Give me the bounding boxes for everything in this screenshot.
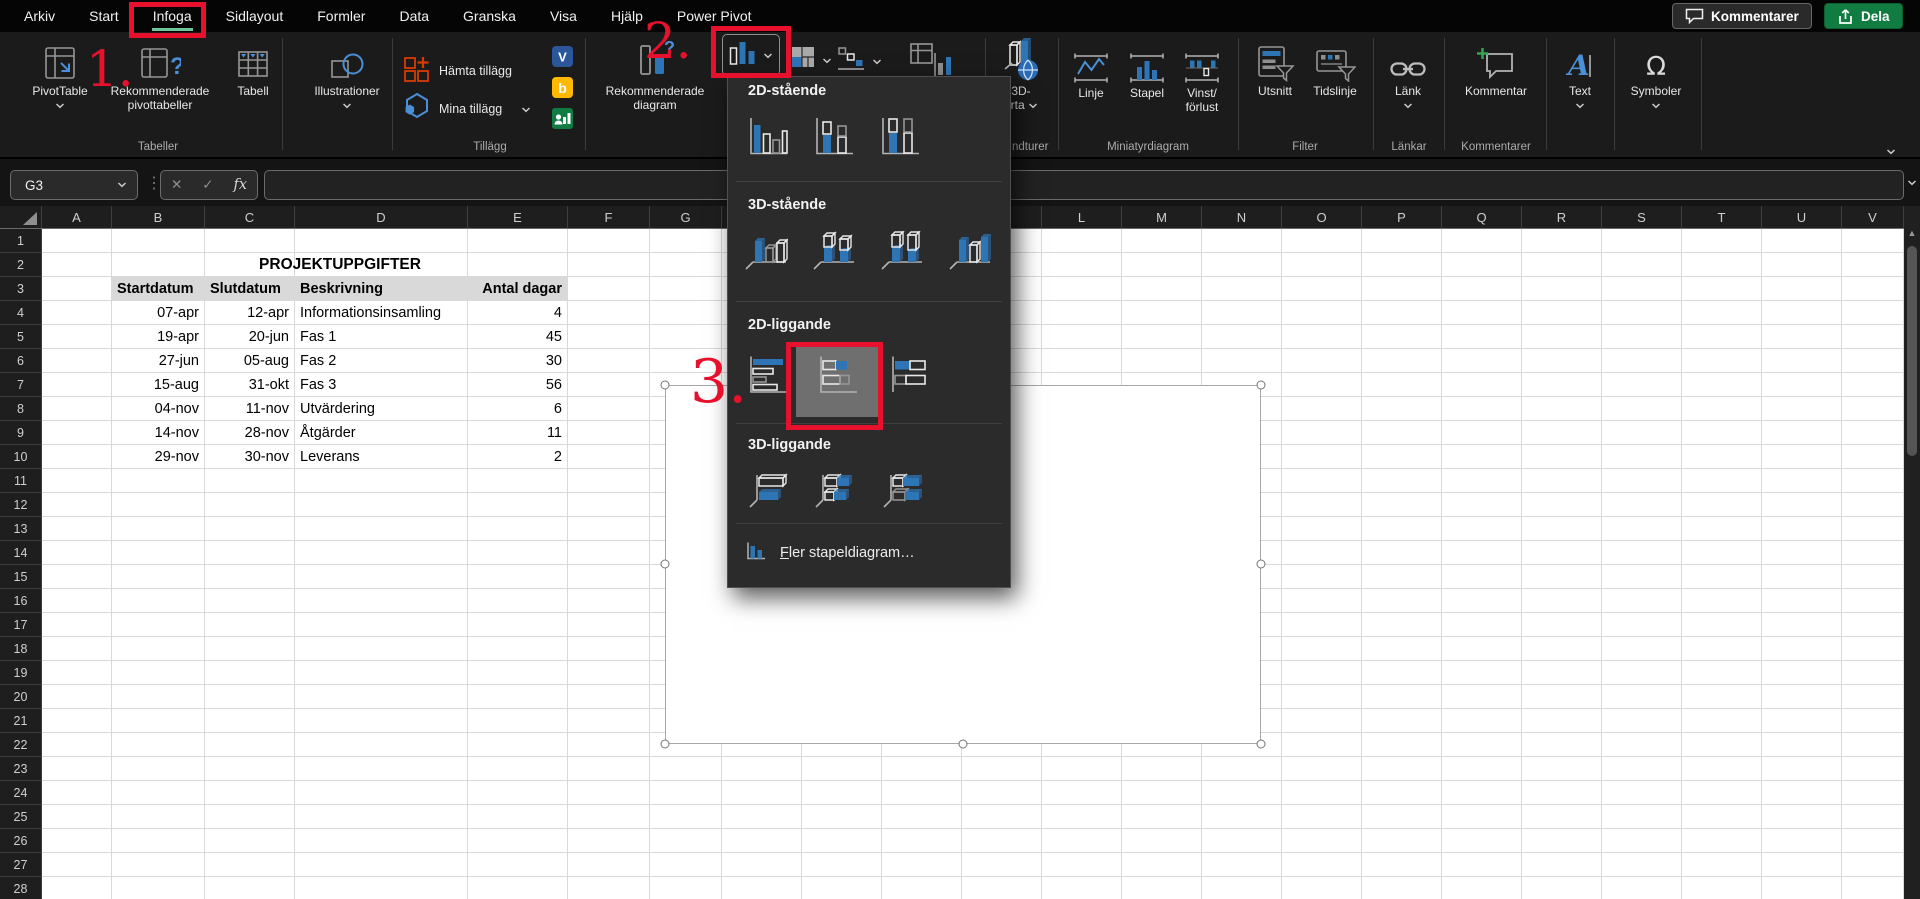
column-header-B[interactable]: B (112, 206, 205, 228)
table-cell[interactable]: 12-apr (205, 301, 295, 325)
svg-text:V: V (558, 50, 567, 65)
chevron-down-icon (55, 103, 65, 109)
table-cell[interactable]: Utvärdering (295, 397, 468, 421)
menu-section-title: 2D-stående (748, 83, 826, 99)
get-addins-icon (402, 54, 432, 87)
sparkline-line-button[interactable]: Linje (1064, 40, 1118, 101)
row-headers: 1234567891011121314151617181920212223242… (0, 229, 42, 899)
share-label: Dela (1861, 9, 1890, 24)
row-header-26[interactable]: 26 (0, 829, 42, 853)
row-header-2[interactable]: 2 (0, 253, 42, 277)
table-cell[interactable]: 31-okt (205, 373, 295, 397)
gridline (42, 804, 1904, 805)
row-header-5[interactable]: 5 (0, 325, 42, 349)
column-header-Q[interactable]: Q (1442, 206, 1522, 228)
row-header-27[interactable]: 27 (0, 853, 42, 877)
table-icon (235, 38, 271, 82)
gridline (42, 828, 1904, 829)
row-header-11[interactable]: 11 (0, 469, 42, 493)
svg-text:?: ? (664, 38, 675, 58)
table-cell[interactable]: 11 (468, 421, 568, 445)
table-cell[interactable]: 4 (468, 301, 568, 325)
column-chart-icon (729, 40, 757, 71)
bing-maps-addin-icon[interactable]: b (552, 77, 573, 98)
menu-tab-start[interactable]: Start (89, 8, 119, 24)
table-cell[interactable]: 30-nov (205, 445, 295, 469)
menu-tab-data[interactable]: Data (399, 8, 429, 24)
formula-input[interactable] (264, 170, 1904, 200)
get-addins-label: Hämta tillägg (439, 64, 512, 78)
menu-tab-formler[interactable]: Formler (317, 8, 365, 24)
timeline-button[interactable]: Tidslinje (1304, 38, 1366, 99)
more-charts-icon (745, 541, 767, 565)
chart-selection-handle[interactable] (661, 560, 670, 569)
name-box-value: G3 (25, 178, 43, 193)
table-cell[interactable]: 19-apr (112, 325, 205, 349)
row-header-14[interactable]: 14 (0, 541, 42, 565)
menu-section-title: 2D-liggande (748, 317, 831, 333)
chart-type-bar-clustered[interactable] (744, 355, 790, 395)
comment-button[interactable]: Kommentar (1456, 38, 1536, 99)
link-icon (1389, 38, 1427, 82)
group-label-tillagg: Tillägg (473, 141, 506, 153)
text-icon: A (1565, 38, 1595, 82)
chart-type-col-stacked[interactable] (810, 117, 856, 157)
more-bar-charts-menu-item[interactable]: Fler stapeldiagram… (728, 527, 1010, 579)
insert-function-button[interactable]: fx (233, 177, 247, 193)
table-cell[interactable]: 04-nov (112, 397, 205, 421)
my-addins-icon (402, 92, 432, 125)
chart-selection-handle[interactable] (661, 740, 670, 749)
table-cell[interactable]: Fas 2 (295, 349, 468, 373)
table-header-cell[interactable]: Slutdatum (205, 277, 295, 301)
row-header-22[interactable]: 22 (0, 733, 42, 757)
scrollbar-thumb[interactable] (1907, 246, 1917, 456)
table-cell[interactable]: Åtgärder (295, 421, 468, 445)
share-icon (1837, 8, 1854, 25)
row-header-3[interactable]: 3 (0, 277, 42, 301)
chart-type-bar3d-100[interactable] (879, 471, 925, 511)
pivotchart-icon (908, 36, 954, 80)
menu-tab-infoga[interactable]: Infoga (153, 8, 192, 24)
pivottable-label: PivotTable (32, 85, 87, 99)
share-button[interactable]: Dela (1824, 3, 1903, 29)
table-cell[interactable]: 14-nov (112, 421, 205, 445)
recommended-pivottables-button[interactable]: ? Rekommenderadepivottabeller (98, 38, 222, 112)
scroll-up-arrow-icon[interactable]: ▲ (1904, 228, 1920, 238)
svg-text:?: ? (170, 53, 181, 80)
chart-selection-handle[interactable] (1257, 560, 1266, 569)
link-button[interactable]: Länk (1384, 38, 1432, 109)
chevron-down-icon (1575, 103, 1585, 109)
people-graph-addin-icon[interactable] (552, 108, 573, 129)
insert-waterfall-chart-button[interactable] (836, 45, 882, 76)
chevron-down-icon (117, 182, 127, 188)
row-header-18[interactable]: 18 (0, 637, 42, 661)
menu-bar: ArkivStartInfogaSidlayoutFormlerDataGran… (0, 0, 1920, 32)
chart-type-col-clustered[interactable] (744, 117, 790, 157)
table-cell[interactable]: 56 (468, 373, 568, 397)
sparkline-winloss-button[interactable]: Vinst/förlust (1176, 40, 1228, 114)
row-header-9[interactable]: 9 (0, 421, 42, 445)
menu-tab-hjälp[interactable]: Hjälp (611, 8, 643, 24)
menu-section-title: 3D-liggande (748, 437, 831, 453)
svg-text:b: b (558, 80, 567, 96)
table-cell[interactable]: 6 (468, 397, 568, 421)
enter-button[interactable]: ✓ (202, 177, 213, 193)
select-all-triangle-icon (23, 212, 37, 225)
menu-tabs: ArkivStartInfogaSidlayoutFormlerDataGran… (0, 8, 752, 24)
row-header-21[interactable]: 21 (0, 709, 42, 733)
menu-tab-arkiv[interactable]: Arkiv (24, 8, 55, 24)
row-header-23[interactable]: 23 (0, 757, 42, 781)
select-all-corner[interactable] (0, 206, 42, 228)
row-header-13[interactable]: 13 (0, 517, 42, 541)
chart-selection-handle[interactable] (661, 381, 670, 390)
sparkline-line-icon (1072, 40, 1110, 84)
column-header-P[interactable]: P (1362, 206, 1442, 228)
chart-type-bar-100[interactable] (886, 355, 932, 395)
insert-hierarchy-chart-button[interactable] (790, 45, 832, 74)
menu-tab-granska[interactable]: Granska (463, 8, 516, 24)
table-cell[interactable]: 28-nov (205, 421, 295, 445)
column-header-N[interactable]: N (1202, 206, 1282, 228)
group-label-rundturer: ndturer (1012, 141, 1048, 153)
table-cell[interactable]: 27-jun (112, 349, 205, 373)
excel-window: ArkivStartInfogaSidlayoutFormlerDataGran… (0, 0, 1920, 899)
chevron-down-icon (763, 46, 773, 64)
recommended-charts-button[interactable]: ? Rekommenderadediagram (596, 38, 714, 112)
sparkline-column-button[interactable]: Stapel (1120, 40, 1174, 101)
table-header-cell[interactable]: Antal dagar (468, 277, 568, 301)
column-header-A[interactable]: A (42, 206, 112, 228)
column-header-D[interactable]: D (295, 206, 468, 228)
table-cell[interactable]: 07-apr (112, 301, 205, 325)
text-button[interactable]: A Text (1556, 38, 1604, 109)
table-cell[interactable]: Fas 3 (295, 373, 468, 397)
comments-button[interactable]: Kommentarer (1672, 3, 1812, 29)
column-header-E[interactable]: E (468, 206, 568, 228)
chevron-down-icon (1028, 99, 1038, 113)
treemap-chart-icon (790, 45, 816, 74)
group-label-miniatyrdiagram: Miniatyrdiagram (1107, 141, 1189, 153)
chevron-down-icon (521, 102, 531, 116)
illustrations-label: Illustrationer (314, 85, 379, 99)
table-cell[interactable]: Informationsinsamling (295, 301, 468, 325)
column-header-C[interactable]: C (205, 206, 295, 228)
my-addins-button[interactable]: Mina tillägg (402, 92, 531, 125)
insert-column-chart-button[interactable] (722, 34, 780, 76)
chart-type-dropdown: 2D-stående3D-stående2D-liggande3D-liggan… (727, 76, 1011, 588)
table-cell[interactable]: 45 (468, 325, 568, 349)
link-label: Länk (1395, 85, 1421, 99)
slicer-icon (1255, 38, 1295, 82)
row-header-16[interactable]: 16 (0, 589, 42, 613)
sparkline-column-icon (1128, 40, 1166, 84)
chart-type-bar3d-stacked[interactable] (811, 471, 857, 511)
chevron-down-icon (822, 51, 832, 69)
vertical-scrollbar[interactable]: ▲ (1904, 206, 1920, 899)
row-header-1[interactable]: 1 (0, 229, 42, 253)
column-header-G[interactable]: G (650, 206, 722, 228)
more-bar-charts-label: Fler stapeldiagram… (780, 545, 915, 561)
gridline (42, 756, 1904, 757)
row-header-8[interactable]: 8 (0, 397, 42, 421)
waterfall-chart-icon (836, 45, 866, 76)
row-header-4[interactable]: 4 (0, 301, 42, 325)
group-label-filter: Filter (1292, 141, 1318, 153)
symbols-label: Symboler (1631, 85, 1682, 99)
row-header-7[interactable]: 7 (0, 373, 42, 397)
chart-selection-handle[interactable] (959, 740, 968, 749)
chart-type-col3d-clustered[interactable] (742, 231, 788, 271)
symbols-button[interactable]: Ω Symboler (1622, 38, 1690, 109)
table-cell[interactable]: 05-aug (205, 349, 295, 373)
table-cell[interactable]: 11-nov (205, 397, 295, 421)
menu-tab-power-pivot[interactable]: Power Pivot (677, 8, 752, 24)
row-header-20[interactable]: 20 (0, 685, 42, 709)
menu-separator (736, 181, 1002, 182)
svg-text:Ω: Ω (1646, 52, 1666, 82)
collapse-ribbon-chevron[interactable] (1886, 142, 1896, 160)
chart-type-col3d-stacked[interactable] (810, 231, 856, 271)
timeline-icon (1314, 38, 1356, 82)
table-label: Tabell (237, 85, 268, 99)
chart-type-bar-stacked-selected[interactable] (814, 355, 860, 395)
column-header-S[interactable]: S (1602, 206, 1682, 228)
formula-bar-expand[interactable] (1907, 180, 1917, 186)
chart-type-bar3d-clustered[interactable] (745, 471, 791, 511)
slicer-button[interactable]: Utsnitt (1246, 38, 1304, 99)
chart-selection-handle[interactable] (1257, 381, 1266, 390)
menu-separator (736, 523, 1002, 524)
group-label-tabeller: Tabeller (138, 141, 178, 153)
table-cell[interactable]: 20-jun (205, 325, 295, 349)
row-header-15[interactable]: 15 (0, 565, 42, 589)
row-header-19[interactable]: 19 (0, 661, 42, 685)
new-comment-icon (1476, 38, 1516, 82)
column-header-F[interactable]: F (568, 206, 650, 228)
column-header-V[interactable]: V (1842, 206, 1904, 228)
gridline (42, 852, 1904, 853)
timeline-label: Tidslinje (1313, 85, 1357, 99)
gridline (42, 876, 1904, 877)
column-header-T[interactable]: T (1682, 206, 1762, 228)
menu-tab-sidlayout[interactable]: Sidlayout (226, 8, 284, 24)
visio-addin-icon[interactable]: V (552, 46, 573, 67)
row-header-10[interactable]: 10 (0, 445, 42, 469)
table-header-cell[interactable]: Beskrivning (295, 277, 468, 301)
name-box[interactable]: G3 (10, 170, 138, 200)
chevron-down-icon (872, 52, 882, 70)
chevron-down-icon (1403, 103, 1413, 109)
chevron-down-icon (1651, 103, 1661, 109)
table-cell[interactable]: 29-nov (112, 445, 205, 469)
table-button[interactable]: Tabell (224, 38, 282, 99)
table-header-cell[interactable]: Startdatum (112, 277, 205, 301)
table-cell[interactable]: Fas 1 (295, 325, 468, 349)
sparkline-line-label: Linje (1078, 87, 1103, 101)
pivotchart-button[interactable] (906, 36, 956, 80)
text-label: Text (1569, 85, 1591, 99)
row-header-24[interactable]: 24 (0, 781, 42, 805)
cancel-button[interactable]: ✕ (171, 177, 182, 193)
menu-separator (736, 301, 1002, 302)
menu-section-title: 3D-stående (748, 197, 826, 213)
chevron-down-icon (342, 103, 352, 109)
comments-icon (1685, 8, 1704, 24)
column-header-M[interactable]: M (1122, 206, 1202, 228)
comment-label: Kommentar (1465, 85, 1527, 99)
column-header-U[interactable]: U (1762, 206, 1842, 228)
row-header-6[interactable]: 6 (0, 349, 42, 373)
pivottable-button[interactable]: PivotTable (26, 38, 94, 109)
row-header-28[interactable]: 28 (0, 877, 42, 899)
illustrations-icon (328, 38, 366, 82)
chart-type-col-100[interactable] (876, 117, 922, 157)
group-label-lankar: Länkar (1391, 141, 1426, 153)
get-addins-button[interactable]: Hämta tillägg (402, 54, 512, 87)
sparkline-column-label: Stapel (1130, 87, 1164, 101)
table-cell[interactable]: 15-aug (112, 373, 205, 397)
gridline (42, 780, 1904, 781)
menu-tab-visa[interactable]: Visa (550, 8, 577, 24)
column-header-O[interactable]: O (1282, 206, 1362, 228)
table-cell[interactable]: Leverans (295, 445, 468, 469)
row-header-12[interactable]: 12 (0, 493, 42, 517)
svg-text:A: A (1565, 49, 1590, 82)
row-header-25[interactable]: 25 (0, 805, 42, 829)
table-title[interactable]: PROJEKTUPPGIFTER (112, 253, 568, 277)
column-header-R[interactable]: R (1522, 206, 1602, 228)
chart-selection-handle[interactable] (1257, 740, 1266, 749)
column-header-L[interactable]: L (1042, 206, 1122, 228)
chart-type-col3d[interactable] (946, 231, 992, 271)
pivottable-icon (42, 38, 78, 82)
sparkline-winloss-icon (1183, 40, 1221, 84)
table-cell[interactable]: 2 (468, 445, 568, 469)
recommended-pivottables-icon: ? (139, 38, 181, 82)
table-cell[interactable]: 30 (468, 349, 568, 373)
recommended-charts-icon: ? (635, 38, 675, 82)
my-addins-label: Mina tillägg (439, 102, 502, 116)
row-header-17[interactable]: 17 (0, 613, 42, 637)
comments-label: Kommentarer (1711, 9, 1799, 24)
chart-type-col3d-100[interactable] (878, 231, 924, 271)
illustrations-button[interactable]: Illustrationer (300, 38, 394, 109)
omega-icon: Ω (1642, 38, 1670, 82)
menu-separator (736, 423, 1002, 424)
slicer-label: Utsnitt (1258, 85, 1292, 99)
group-label-kommentarer: Kommentarer (1461, 141, 1531, 153)
